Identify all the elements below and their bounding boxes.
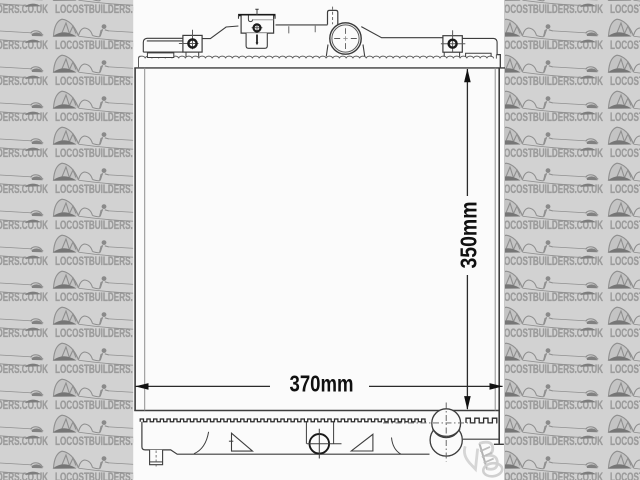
svg-text:370mm: 370mm	[290, 371, 354, 397]
svg-text:350mm: 350mm	[455, 202, 481, 269]
